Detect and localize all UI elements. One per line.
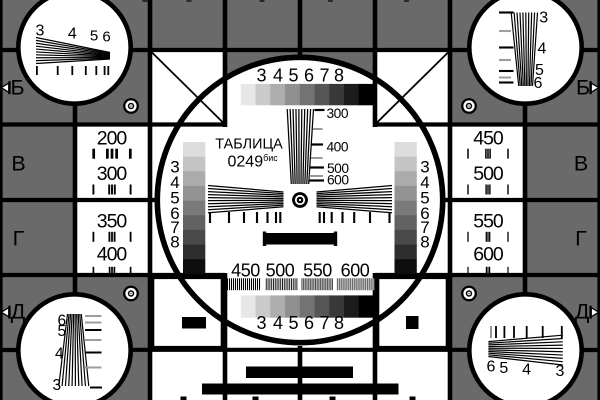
svg-text:3: 3	[256, 66, 266, 86]
svg-text:5: 5	[288, 66, 298, 86]
svg-text:350: 350	[97, 211, 128, 233]
svg-text:8: 8	[334, 66, 344, 86]
svg-text:450: 450	[231, 260, 260, 280]
svg-text:6: 6	[304, 66, 314, 86]
svg-text:ТАБЛИЦА: ТАБЛИЦА	[215, 137, 283, 153]
svg-text:3: 3	[556, 363, 565, 380]
svg-text:400: 400	[327, 140, 349, 155]
svg-text:5: 5	[499, 360, 508, 377]
svg-text:6: 6	[534, 75, 543, 92]
svg-text:3: 3	[256, 313, 266, 333]
svg-text:600: 600	[341, 260, 370, 280]
svg-text:5: 5	[288, 313, 298, 333]
svg-text:600: 600	[473, 244, 504, 266]
svg-text:300: 300	[327, 106, 349, 121]
svg-text:6: 6	[102, 29, 110, 46]
svg-text:7: 7	[319, 66, 329, 86]
svg-text:8: 8	[420, 232, 429, 251]
svg-text:450: 450	[473, 127, 504, 149]
svg-text:4: 4	[538, 41, 547, 58]
svg-text:5: 5	[90, 28, 98, 45]
svg-text:4: 4	[522, 362, 531, 379]
svg-text:8: 8	[334, 313, 344, 333]
svg-text:4: 4	[68, 26, 77, 43]
svg-text:3: 3	[539, 10, 548, 27]
svg-text:7: 7	[319, 313, 329, 333]
svg-text:В: В	[574, 152, 588, 176]
svg-text:5: 5	[57, 323, 66, 340]
svg-text:Д: Д	[11, 300, 26, 324]
svg-text:Д: Д	[575, 300, 590, 324]
svg-text:500: 500	[266, 260, 295, 280]
svg-text:600: 600	[327, 172, 349, 187]
svg-text:4: 4	[55, 346, 64, 363]
svg-text:Б: Б	[10, 75, 24, 99]
svg-text:8: 8	[170, 232, 179, 251]
svg-text:3: 3	[36, 23, 45, 40]
svg-text:4: 4	[273, 66, 283, 86]
svg-text:4: 4	[273, 313, 283, 333]
svg-text:550: 550	[303, 260, 332, 280]
svg-text:550: 550	[473, 211, 504, 233]
svg-text:6: 6	[487, 359, 496, 376]
svg-text:6: 6	[304, 313, 314, 333]
svg-text:300: 300	[97, 163, 128, 185]
svg-text:В: В	[11, 152, 25, 176]
svg-text:Г: Г	[13, 226, 25, 250]
svg-text:Б: Б	[576, 75, 590, 99]
svg-text:500: 500	[473, 163, 504, 185]
svg-text:3: 3	[52, 377, 61, 394]
svg-text:Г: Г	[575, 226, 587, 250]
svg-text:400: 400	[97, 244, 128, 266]
svg-text:200: 200	[97, 127, 128, 149]
